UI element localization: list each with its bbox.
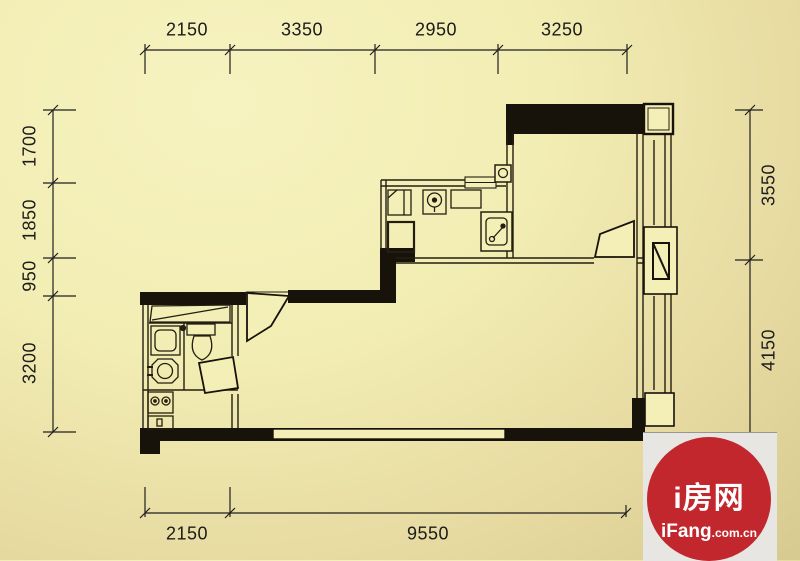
- dim-label-top-4: 3250: [541, 20, 583, 41]
- floor-plan-page: { "dimensions": { "top": ["2150", "3350"…: [0, 0, 800, 560]
- dim-label-left-2: 1850: [20, 199, 41, 241]
- left-dimension-line: [43, 105, 76, 437]
- bathroom-door-leaf: [199, 357, 238, 393]
- dim-label-left-4: 3200: [20, 342, 41, 384]
- dim-label-left-1: 1700: [20, 125, 41, 167]
- watermark-panel: i房网 iFang.com.cn: [643, 432, 777, 561]
- dim-label-right-1: 3550: [759, 164, 780, 206]
- entry-door-leaf: [247, 293, 289, 341]
- kitchen-counter: [451, 190, 481, 208]
- kitchen-lower-cabinet: [388, 222, 414, 252]
- dim-label-bottom-1: 2150: [166, 524, 208, 545]
- kitchen-left-wall: [381, 180, 386, 250]
- bedroom-right-wall: [637, 133, 643, 398]
- entry-wall-left: [140, 292, 246, 305]
- floor-plan-stage: 2150 3350 2950 3250 1700 1850 950 3200 3…: [0, 0, 800, 560]
- dim-label-left-3: 950: [20, 260, 41, 292]
- top-dimension-line: [140, 44, 632, 74]
- step-wall-top: [380, 248, 415, 262]
- entry-wall-right: [288, 290, 396, 303]
- balcony-fixtures: [644, 227, 677, 426]
- gas-meter-symbol: [495, 165, 511, 182]
- bathroom-cabinet: [148, 416, 173, 429]
- windows: [273, 177, 505, 439]
- doors: [199, 221, 634, 393]
- bay-bottom-stub: [632, 398, 645, 429]
- fridge-symbol: [388, 190, 411, 215]
- kitchen-window: [465, 177, 496, 188]
- watermark-brand-text: i房网: [647, 437, 771, 517]
- watermark-domain-text: iFang.com.cn: [647, 521, 771, 543]
- bottom-dimension-line: [140, 487, 631, 518]
- washbasin-symbol: [151, 326, 180, 355]
- living-room-window: [273, 429, 505, 439]
- watermark-site-name: iFang: [661, 521, 712, 542]
- ac-unit-symbol: [644, 227, 677, 294]
- watermark-logo: i房网 iFang.com.cn: [647, 437, 771, 561]
- top-right-column: [644, 104, 673, 134]
- dim-label-top-1: 2150: [166, 20, 208, 41]
- washer-knob-box: [148, 392, 173, 413]
- dim-label-bottom-2: 9550: [407, 524, 449, 545]
- dim-label-top-3: 2950: [415, 20, 457, 41]
- bottom-left-pier: [140, 428, 160, 454]
- stove-symbol: [423, 190, 446, 214]
- toilet-symbol: [181, 324, 216, 360]
- bedroom-door-leaf: [595, 221, 634, 257]
- right-dimension-line: [735, 105, 763, 445]
- washing-machine-symbol: [147, 359, 178, 383]
- outer-walls: [140, 104, 645, 454]
- dim-label-right-2: 4150: [759, 329, 780, 371]
- shower-cabinet-symbol: [150, 305, 230, 322]
- dim-label-top-2: 3350: [281, 20, 323, 41]
- watermark-site-suffix: .com.cn: [712, 526, 757, 540]
- bay-bottom-box: [645, 393, 674, 426]
- kitchen-sink-symbol: [481, 212, 512, 251]
- bedroom-top-wall: [506, 104, 645, 134]
- living-divider-wall: [396, 258, 645, 263]
